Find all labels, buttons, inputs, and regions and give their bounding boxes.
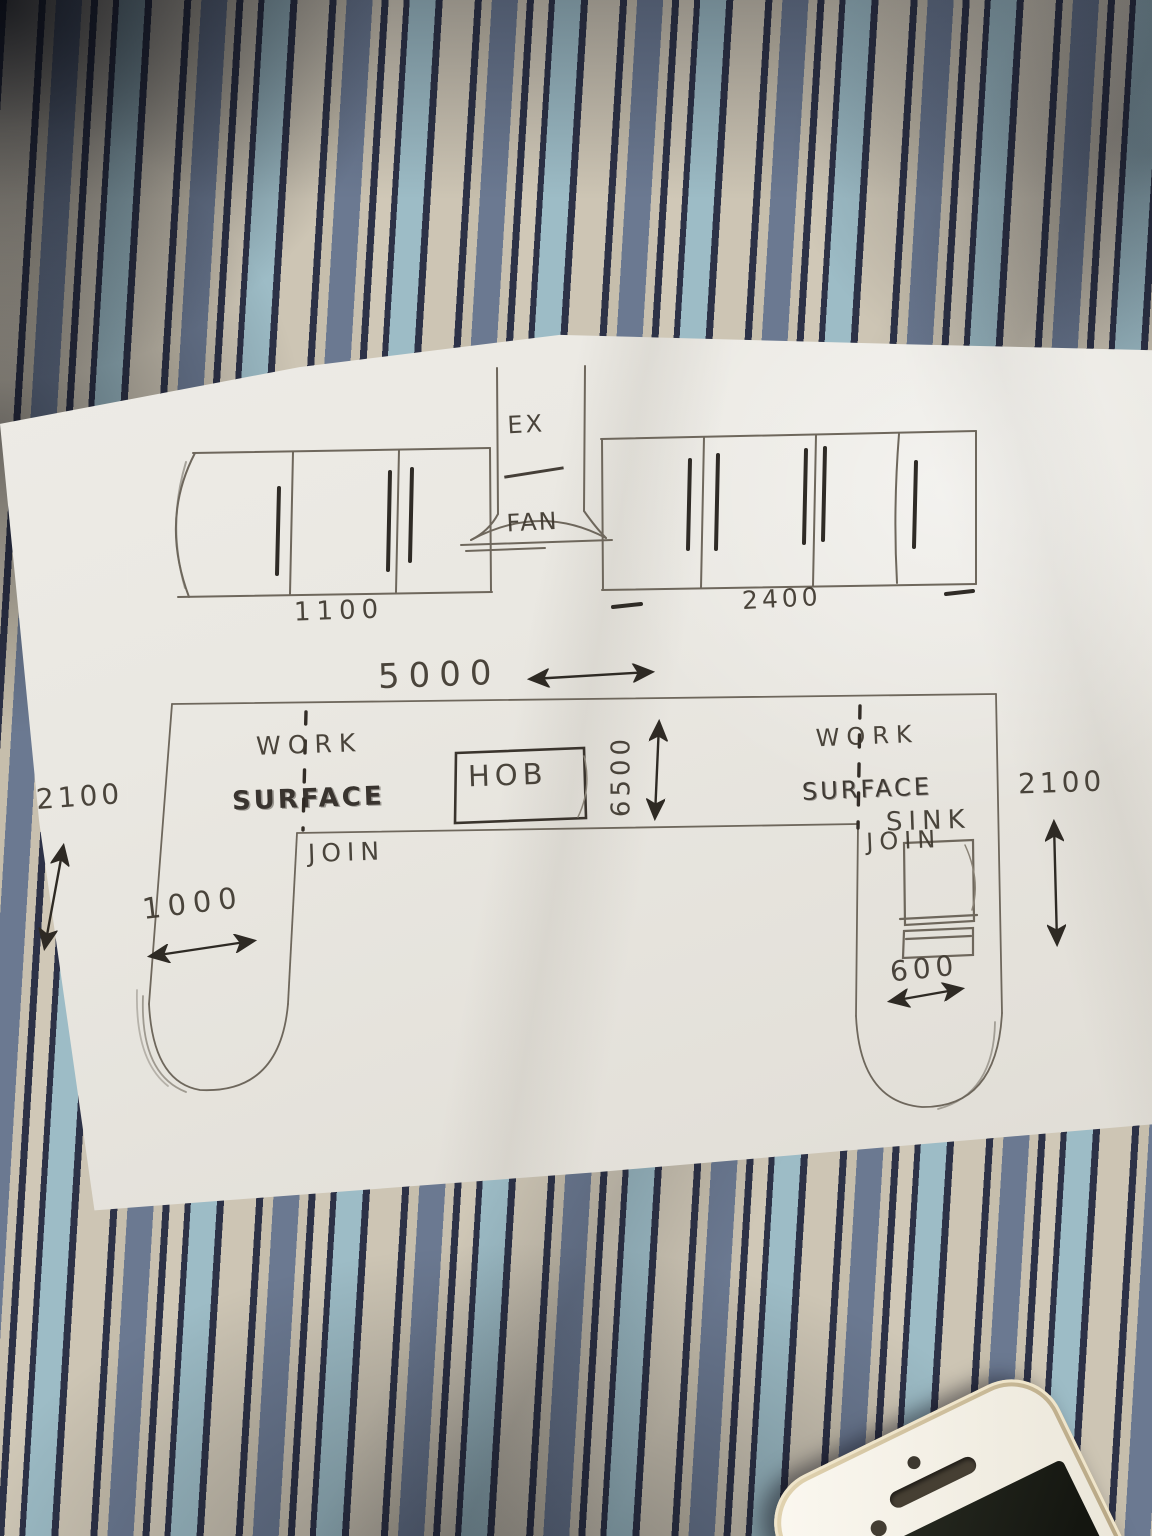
photo-of-kitchen-sketch: 1100 2400 EX FAN 5000 WORK SURFACE JOIN … <box>0 0 1152 1536</box>
dimension-left-units: 1100 <box>294 596 385 626</box>
dimension-mid-vertical: 6500 <box>608 735 635 817</box>
join-left-word-1: WORK <box>256 729 383 758</box>
join-left-word-3: JOIN <box>307 838 386 866</box>
join-right-word-2: SURFACE <box>802 774 940 804</box>
join-right-word-1: WORK <box>815 721 937 750</box>
extractor-fan-label: EX FAN <box>499 377 569 571</box>
dimension-left-return: 2100 <box>35 779 124 814</box>
dimension-overall-width: 5000 <box>377 656 501 696</box>
phone-earpiece-speaker <box>887 1454 979 1510</box>
extractor-fan-label-top: EX <box>507 410 562 438</box>
dimension-right-units: 2400 <box>741 584 822 614</box>
phone-sensor-dot <box>868 1518 889 1536</box>
join-left-word-2: SURFACE <box>232 783 385 814</box>
sink-label: SINK <box>886 807 972 837</box>
dimension-sink-width: 600 <box>889 951 960 987</box>
work-surface-join-right: WORK SURFACE JOIN <box>798 689 943 889</box>
extractor-fan-label-bottom: FAN <box>506 508 567 536</box>
work-surface-join-left: WORK SURFACE JOIN <box>229 697 388 900</box>
extractor-fan-underline <box>504 467 564 479</box>
phone-camera-dot <box>905 1454 922 1471</box>
dimension-right-return: 2100 <box>1018 766 1106 798</box>
hob-label: HOB <box>467 759 548 792</box>
